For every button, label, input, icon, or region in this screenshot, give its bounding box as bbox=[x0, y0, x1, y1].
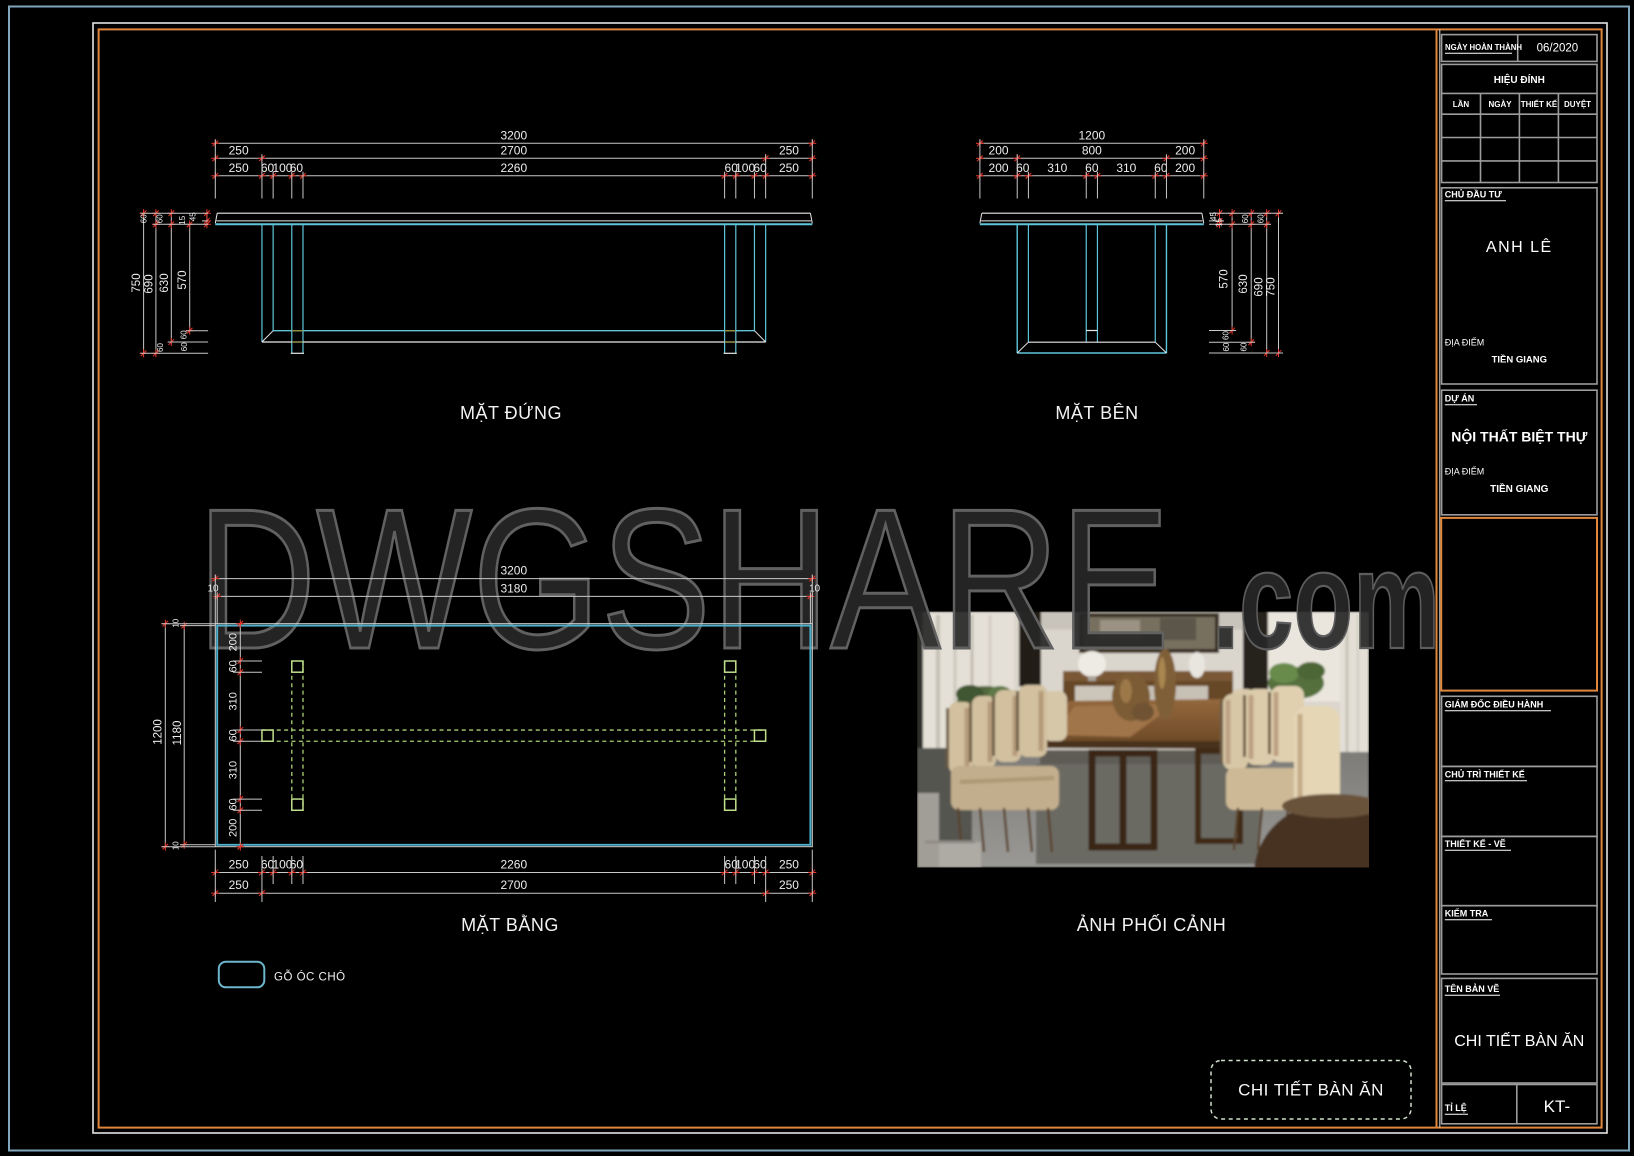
svg-text:CHI TIẾT BÀN ĂN: CHI TIẾT BÀN ĂN bbox=[1238, 1081, 1384, 1100]
svg-text:60: 60 bbox=[180, 342, 189, 351]
svg-text:CHI TIẾT BÀN ĂN: CHI TIẾT BÀN ĂN bbox=[1454, 1031, 1584, 1050]
svg-text:10: 10 bbox=[172, 841, 181, 850]
svg-text:750: 750 bbox=[131, 273, 143, 292]
svg-text:GỖ ÓC CHÓ: GỖ ÓC CHÓ bbox=[274, 971, 346, 984]
svg-text:60: 60 bbox=[156, 343, 165, 352]
svg-text:TỈ LỆ: TỈ LỆ bbox=[1445, 1102, 1467, 1113]
svg-text:1200: 1200 bbox=[153, 719, 165, 745]
svg-text:250: 250 bbox=[779, 161, 799, 175]
svg-text:200: 200 bbox=[989, 161, 1009, 175]
svg-text:800: 800 bbox=[1082, 143, 1102, 157]
svg-text:690: 690 bbox=[143, 274, 155, 293]
svg-text:THIẾT KẾ - VẼ: THIẾT KẾ - VẼ bbox=[1445, 839, 1506, 849]
svg-text:LẦN: LẦN bbox=[1453, 99, 1470, 109]
svg-text:CHỦ TRÌ THIẾT KẾ: CHỦ TRÌ THIẾT KẾ bbox=[1445, 769, 1525, 780]
svg-text:250: 250 bbox=[779, 858, 799, 872]
svg-text:630: 630 bbox=[159, 273, 171, 292]
svg-text:MẶT ĐỨNG: MẶT ĐỨNG bbox=[460, 402, 562, 423]
svg-text:DỰ ÁN: DỰ ÁN bbox=[1445, 394, 1474, 404]
svg-text:200: 200 bbox=[1175, 161, 1195, 175]
svg-text:.com: .com bbox=[1212, 521, 1440, 678]
svg-text:200: 200 bbox=[1175, 143, 1195, 157]
svg-text:MẶT BẰNG: MẶT BẰNG bbox=[461, 914, 559, 935]
svg-text:60: 60 bbox=[140, 214, 149, 223]
svg-text:45: 45 bbox=[189, 212, 198, 221]
svg-text:KIỂM TRA: KIỂM TRA bbox=[1445, 908, 1489, 919]
svg-text:ĐỊA ĐIỂM: ĐỊA ĐIỂM bbox=[1445, 337, 1485, 348]
svg-text:2700: 2700 bbox=[500, 143, 527, 157]
svg-text:3200: 3200 bbox=[500, 128, 527, 142]
svg-text:60: 60 bbox=[155, 214, 164, 223]
svg-text:15: 15 bbox=[178, 215, 187, 224]
svg-text:15: 15 bbox=[1215, 218, 1224, 227]
svg-text:MẶT BÊN: MẶT BÊN bbox=[1055, 403, 1138, 423]
svg-text:DUYỆT: DUYỆT bbox=[1564, 100, 1591, 109]
svg-text:DWGSHARE: DWGSHARE bbox=[197, 468, 1170, 691]
svg-text:TIỀN GIANG: TIỀN GIANG bbox=[1492, 355, 1547, 366]
svg-text:1200: 1200 bbox=[1078, 128, 1105, 142]
svg-text:250: 250 bbox=[229, 143, 249, 157]
svg-text:60: 60 bbox=[1240, 342, 1249, 351]
svg-text:60: 60 bbox=[1241, 214, 1250, 223]
svg-text:250: 250 bbox=[779, 143, 799, 157]
svg-text:10: 10 bbox=[172, 618, 181, 627]
svg-text:HIỆU ĐÍNH: HIỆU ĐÍNH bbox=[1494, 73, 1545, 86]
svg-text:2260: 2260 bbox=[500, 161, 527, 175]
svg-text:60: 60 bbox=[180, 330, 189, 339]
svg-text:2700: 2700 bbox=[500, 878, 527, 892]
svg-text:TÊN BẢN VẼ: TÊN BẢN VẼ bbox=[1445, 983, 1500, 994]
svg-text:250: 250 bbox=[779, 878, 799, 892]
svg-text:ANH LÊ: ANH LÊ bbox=[1486, 237, 1553, 256]
svg-text:570: 570 bbox=[177, 270, 189, 289]
svg-text:GIÁM ĐỐC ĐIỀU HÀNH: GIÁM ĐỐC ĐIỀU HÀNH bbox=[1445, 699, 1544, 710]
svg-text:60: 60 bbox=[1154, 161, 1168, 175]
svg-text:570: 570 bbox=[1219, 269, 1231, 288]
svg-text:310: 310 bbox=[228, 692, 240, 710]
svg-text:60: 60 bbox=[1222, 342, 1231, 351]
svg-text:200: 200 bbox=[989, 143, 1009, 157]
svg-text:3180: 3180 bbox=[500, 581, 527, 595]
svg-text:310: 310 bbox=[1047, 161, 1067, 175]
svg-text:06/2020: 06/2020 bbox=[1537, 43, 1579, 55]
svg-text:ẢNH PHỐI CẢNH: ẢNH PHỐI CẢNH bbox=[1077, 914, 1227, 935]
svg-text:3200: 3200 bbox=[500, 564, 527, 578]
svg-text:60: 60 bbox=[228, 660, 240, 672]
svg-text:60: 60 bbox=[753, 161, 767, 175]
svg-text:60: 60 bbox=[1085, 161, 1099, 175]
svg-text:60: 60 bbox=[753, 858, 767, 872]
svg-text:60: 60 bbox=[1016, 161, 1030, 175]
svg-text:250: 250 bbox=[229, 878, 249, 892]
svg-text:250: 250 bbox=[229, 161, 249, 175]
svg-text:60: 60 bbox=[228, 798, 240, 810]
svg-text:CHỦ ĐẦU TƯ: CHỦ ĐẦU TƯ bbox=[1445, 189, 1502, 200]
svg-text:THIẾT KẾ: THIẾT KẾ bbox=[1521, 99, 1558, 109]
svg-text:250: 250 bbox=[229, 858, 249, 872]
svg-text:750: 750 bbox=[1266, 277, 1278, 296]
svg-text:310: 310 bbox=[228, 761, 240, 779]
svg-text:60: 60 bbox=[228, 729, 240, 741]
svg-text:KT-: KT- bbox=[1544, 1097, 1570, 1116]
svg-text:2260: 2260 bbox=[500, 858, 527, 872]
svg-text:630: 630 bbox=[1238, 274, 1250, 293]
svg-text:NỘI THẤT BIỆT THỰ: NỘI THẤT BIỆT THỰ bbox=[1451, 428, 1587, 445]
svg-text:NGÀY: NGÀY bbox=[1488, 100, 1512, 109]
svg-text:TIỀN GIANG: TIỀN GIANG bbox=[1490, 482, 1549, 495]
svg-text:60: 60 bbox=[1257, 214, 1266, 223]
svg-text:200: 200 bbox=[228, 819, 240, 837]
svg-text:200: 200 bbox=[228, 633, 240, 651]
svg-text:310: 310 bbox=[1116, 161, 1136, 175]
svg-text:ĐỊA ĐIỂM: ĐỊA ĐIỂM bbox=[1445, 466, 1485, 477]
svg-text:60: 60 bbox=[1222, 331, 1231, 340]
svg-text:1180: 1180 bbox=[172, 721, 184, 746]
svg-text:690: 690 bbox=[1254, 277, 1266, 296]
svg-text:NGÀY HOÀN THÀNH: NGÀY HOÀN THÀNH bbox=[1445, 43, 1522, 52]
